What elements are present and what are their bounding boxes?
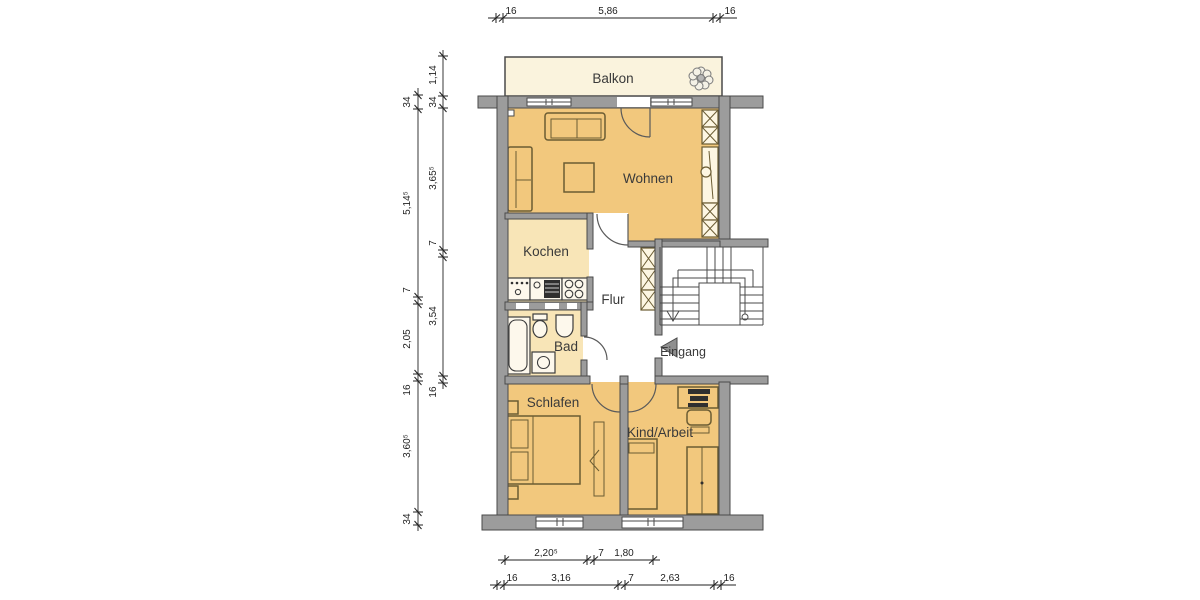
wall-bad-right-upper xyxy=(581,302,587,336)
dim-label: 7 xyxy=(628,573,634,584)
dim-label: 3,65⁵ xyxy=(428,166,439,190)
wall-kochen-right-upper xyxy=(587,213,593,249)
dim-label: 1,80 xyxy=(614,548,634,559)
dim-label: 1,14 xyxy=(428,65,439,85)
dim-label: 16 xyxy=(724,6,736,17)
dim-label: 7 xyxy=(402,287,413,293)
wall-wohnen-flur xyxy=(628,241,720,247)
dimension-left-inner: 1,14 34 3,65⁵ 7 3,54 16 xyxy=(428,50,448,398)
dimension-bottom-lower: 16 3,16 7 2,63 16 xyxy=(490,573,736,590)
label-kind-arbeit: Kind/Arbeit xyxy=(627,425,693,440)
dim-label: 3,54 xyxy=(428,306,439,326)
wall-kochen-right-lower xyxy=(587,277,593,304)
kitchen-counter xyxy=(508,278,588,300)
wardrobe-wall-unit xyxy=(701,110,718,237)
window-bottom-right xyxy=(622,517,683,528)
dimension-left-outer: 34 5,14⁵ 7 2,05 16 3,60⁵ 34 xyxy=(402,88,423,531)
label-balkon: Balkon xyxy=(592,71,633,86)
dim-label: 16 xyxy=(428,386,439,398)
kochen-furniture xyxy=(508,278,588,300)
dim-label: 3,16 xyxy=(551,573,571,584)
wall-right-lower xyxy=(719,382,730,515)
window-bottom-left xyxy=(536,517,583,528)
dim-label: 16 xyxy=(723,573,735,584)
dim-label: 34 xyxy=(402,513,413,525)
flur-furniture xyxy=(641,248,656,310)
hall-wardrobe xyxy=(641,248,656,310)
washing-machine xyxy=(532,352,555,373)
dim-label: 34 xyxy=(402,96,413,108)
wall-schlafen-top xyxy=(505,376,590,384)
sink xyxy=(556,315,573,337)
wall-schlafen-kind xyxy=(620,384,628,515)
dim-label: 3,60⁵ xyxy=(402,434,413,458)
toilet xyxy=(533,314,547,338)
window-top-right xyxy=(651,98,692,106)
bathtub xyxy=(506,317,530,374)
dim-label: 2,05 xyxy=(402,329,413,349)
dim-label: 16 xyxy=(402,384,413,396)
dim-label: 16 xyxy=(506,573,518,584)
label-eingang: Eingang xyxy=(660,345,706,359)
label-wohnen: Wohnen xyxy=(623,171,673,186)
dimension-top: 16 5,86 16 xyxy=(488,6,737,23)
dim-label: 2,20⁵ xyxy=(534,548,558,559)
dim-label: 7 xyxy=(428,240,439,246)
floor-plan-page: Balkon Wohnen Kochen Flur Bad Eingang Sc… xyxy=(0,0,1200,600)
staircase xyxy=(660,247,763,325)
wall-wohnen-kochen xyxy=(505,213,590,219)
stair-walk-line xyxy=(673,278,745,320)
label-flur: Flur xyxy=(601,292,625,307)
label-schlafen: Schlafen xyxy=(527,395,580,410)
label-kochen: Kochen xyxy=(523,244,569,259)
room-kind-arbeit xyxy=(628,382,719,515)
floor-plan-drawing: Balkon Wohnen Kochen Flur Bad Eingang Sc… xyxy=(0,0,1200,600)
dim-label: 2,63 xyxy=(660,573,680,584)
label-bad: Bad xyxy=(554,339,578,354)
dim-label: 34 xyxy=(428,96,439,108)
balcony-door-opening xyxy=(617,97,650,107)
dim-label: 7 xyxy=(598,548,604,559)
sink-drainer xyxy=(544,280,560,298)
dim-label: 5,14⁵ xyxy=(402,191,413,215)
window-top-left xyxy=(527,98,571,106)
mirror-icon xyxy=(701,167,711,177)
dimension-bottom-upper: 2,20⁵ 7 1,80 xyxy=(498,548,660,565)
dim-label: 5,86 xyxy=(598,6,618,17)
wall-right-upper xyxy=(719,96,730,247)
dim-label: 16 xyxy=(505,6,517,17)
wall-door-post xyxy=(620,376,628,384)
wall-entry-bottom xyxy=(655,376,768,384)
